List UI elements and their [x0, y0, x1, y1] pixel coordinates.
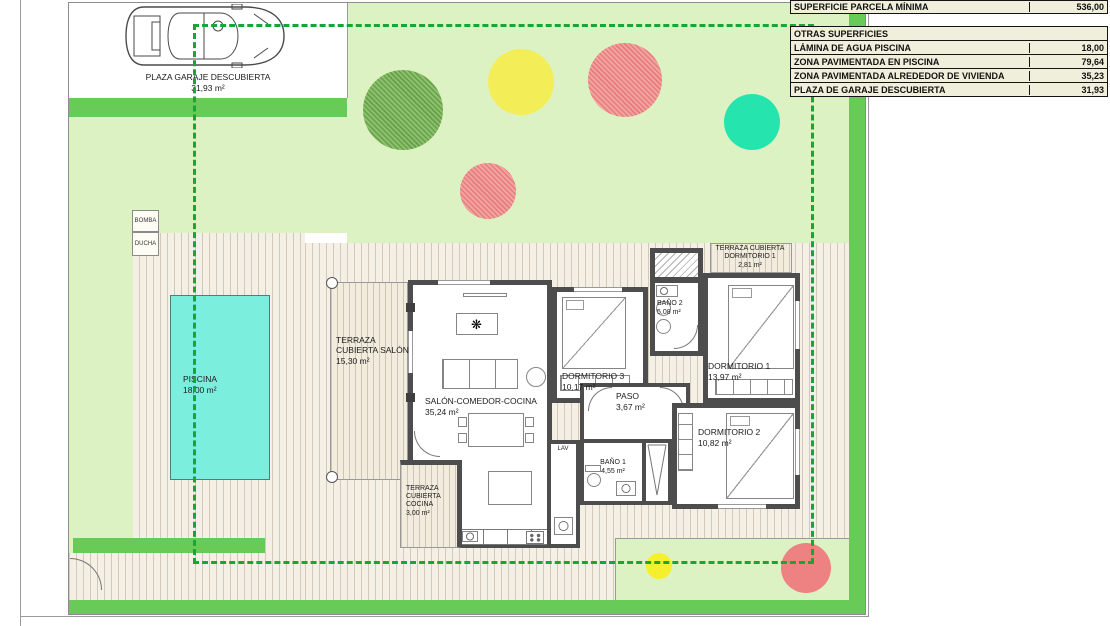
pump-label: BOMBA — [135, 218, 157, 224]
other-surfaces-header: OTRAS SUPERFICIES — [791, 29, 1029, 39]
page-border-left — [20, 0, 21, 626]
terrace-kitchen-area: 3,00 m² — [406, 510, 456, 518]
bathroom2-area: 5,08 m² — [657, 309, 703, 317]
bedroom1-area: 13,97 m² — [708, 372, 798, 382]
terrace-bedroom1-label: TERRAZA CUBIERTA DORMITORIO 1 2,81 m² — [702, 245, 798, 270]
salon-area: 35,24 m² — [425, 407, 555, 417]
bedroom2-area: 10,82 m² — [698, 438, 793, 448]
row-label: LÁMINA DE AGUA PISCINA — [791, 43, 1029, 53]
bedroom1-name: DORMITORIO 1 — [708, 361, 798, 371]
row-label: PLAZA DE GARAJE DESCUBIERTA — [791, 85, 1029, 95]
table-row: ZONA PAVIMENTADA ALREDEDOR DE VIVIENDA 3… — [791, 68, 1107, 82]
bedroom1-label: DORMITORIO 1 13,97 m² — [708, 361, 798, 382]
terrace-bedroom1-area: 2,81 m² — [702, 262, 798, 270]
table-row: PLAZA DE GARAJE DESCUBIERTA 31,93 — [791, 82, 1107, 96]
shower-label: DUCHA — [135, 241, 156, 247]
hallway-label: PASO 3,67 m² — [616, 391, 686, 412]
pump-box: BOMBA — [132, 210, 159, 232]
row-value: 31,93 — [1029, 85, 1107, 95]
bedroom3-label: DORMITORIO 3 10,17 m² — [562, 371, 652, 392]
salon-label: SALÓN-COMEDOR-COCINA 35,24 m² — [425, 396, 555, 417]
row-value: 35,23 — [1029, 71, 1107, 81]
salon-name: SALÓN-COMEDOR-COCINA — [425, 396, 555, 406]
terrace-kitchen-label: TERRAZA CUBIERTA COCINA 3,00 m² — [406, 485, 456, 518]
page-border-bottom — [20, 616, 869, 617]
terrace-salon-label: TERRAZA CUBIERTA SALÓN 15,30 m² — [336, 335, 416, 366]
bathroom1-label: BAÑO 1 4,55 m² — [584, 459, 642, 476]
bedroom3-name: DORMITORIO 3 — [562, 371, 652, 381]
hallway-name: PASO — [616, 391, 686, 401]
other-surfaces-table: OTRAS SUPERFICIES LÁMINA DE AGUA PISCINA… — [790, 26, 1108, 97]
terrace-bedroom1-name: TERRAZA CUBIERTA DORMITORIO 1 — [702, 245, 798, 261]
hallway-area: 3,67 m² — [616, 402, 686, 412]
terrace-salon-area: 15,30 m² — [336, 356, 416, 366]
terrace-kitchen-name: TERRAZA CUBIERTA COCINA — [406, 485, 456, 509]
shower-box: DUCHA — [132, 232, 159, 256]
bathroom2-label: BAÑO 2 5,08 m² — [657, 300, 703, 317]
bathroom1-area: 4,55 m² — [584, 468, 642, 476]
site-plan-canvas: PLAZA GARAJE DESCUBIERTA 31,93 m² BOMBA … — [0, 0, 1110, 626]
laundry-label: LAV — [549, 446, 577, 453]
parcel-row-label: SUPERFICIE PARCELA MÍNIMA — [791, 2, 1029, 12]
parcel-minimum-dashed-boundary — [193, 24, 814, 564]
bedroom2-label: DORMITORIO 2 10,82 m² — [698, 427, 793, 448]
table-row: LÁMINA DE AGUA PISCINA 18,00 — [791, 40, 1107, 54]
row-label: ZONA PAVIMENTADA ALREDEDOR DE VIVIENDA — [791, 71, 1029, 81]
row-label: ZONA PAVIMENTADA EN PISCINA — [791, 57, 1029, 67]
table-row: ZONA PAVIMENTADA EN PISCINA 79,64 — [791, 54, 1107, 68]
table-header-row: OTRAS SUPERFICIES — [791, 27, 1107, 40]
row-value: 79,64 — [1029, 57, 1107, 67]
parcel-surface-table: SUPERFICIE PARCELA MÍNIMA 536,00 — [790, 0, 1108, 14]
bedroom2-name: DORMITORIO 2 — [698, 427, 793, 437]
bathroom1-name: BAÑO 1 — [584, 459, 642, 467]
row-value: 18,00 — [1029, 43, 1107, 53]
terrace-salon-name: TERRAZA CUBIERTA SALÓN — [336, 335, 416, 355]
bathroom2-name: BAÑO 2 — [657, 300, 703, 308]
parcel-row-value: 536,00 — [1029, 2, 1107, 12]
table-row: SUPERFICIE PARCELA MÍNIMA 536,00 — [791, 1, 1107, 13]
